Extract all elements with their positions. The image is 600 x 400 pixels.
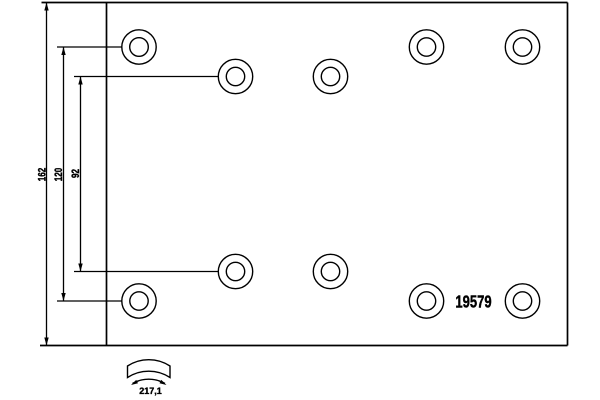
svg-text:120: 120	[53, 168, 66, 181]
svg-text:92: 92	[70, 169, 83, 178]
svg-text:217,1: 217,1	[139, 386, 162, 396]
svg-text:162: 162	[36, 168, 49, 181]
svg-text:19579: 19579	[455, 293, 491, 312]
